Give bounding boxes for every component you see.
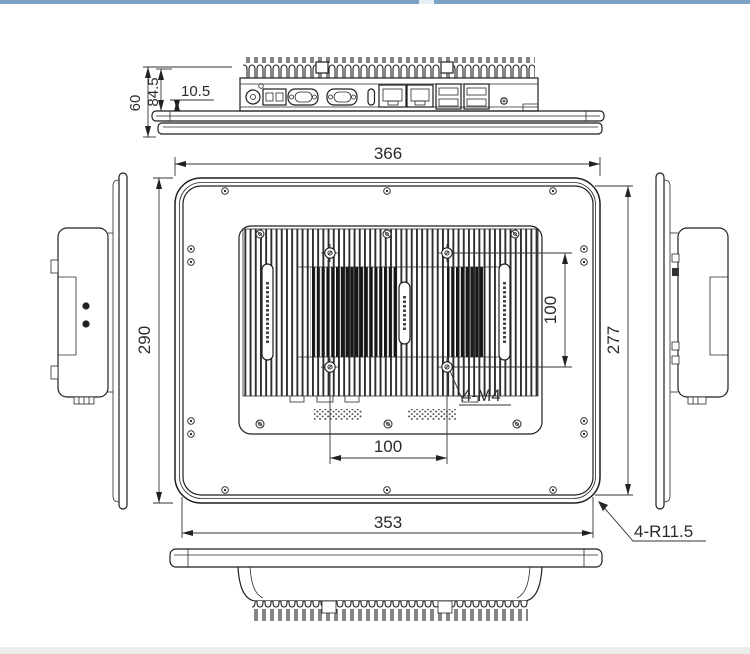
rear-view: 366 290 277 353 100 100 [135, 144, 706, 541]
top-view-dimensions: 60 84.5 10.5 [127, 67, 232, 137]
fin-lug [438, 601, 452, 613]
speaker-grille-right [408, 409, 456, 420]
chassis-body-right-view [678, 228, 728, 397]
reset-button [501, 98, 507, 104]
heatsink-fins-bottom [252, 601, 528, 621]
dim-outer-height: 290 [135, 326, 154, 354]
front-glass-top-view [158, 123, 602, 134]
fin-lug [316, 62, 328, 73]
mount-clip [51, 366, 58, 379]
fin-lug [441, 62, 453, 73]
front-glass-left-view [119, 173, 127, 509]
side-hole [82, 320, 89, 327]
usb-c-port [368, 89, 375, 105]
window-top-edge-bar [0, 0, 750, 4]
heatsink-fins-dense [447, 267, 483, 357]
heatsink-fins-top [243, 57, 535, 78]
foot [74, 397, 94, 404]
heatsink-fins-dense [310, 267, 398, 357]
chassis-body-left-view [58, 228, 108, 397]
usb-stack-2 [464, 84, 489, 109]
ethernet-port-2 [407, 85, 433, 107]
front-glass-right-view [656, 173, 664, 509]
mount-clip [672, 356, 679, 364]
serial-port-com2 [327, 89, 357, 105]
mount-clip [51, 260, 58, 273]
serial-port-com1 [288, 89, 318, 105]
left-side-view [51, 173, 127, 509]
mount-clip [672, 254, 679, 262]
dim-outer-width: 366 [374, 144, 402, 163]
right-side-view [656, 173, 728, 509]
mount-clip [672, 268, 679, 276]
chassis-body-bottom-view [238, 567, 542, 601]
power-jack [246, 90, 260, 104]
dim-depth-total: 60 [127, 95, 144, 112]
ethernet-port-1 [379, 85, 406, 107]
top-bar-notch [419, 0, 434, 4]
top-profile-view: 60 84.5 10.5 [127, 57, 604, 137]
usb-stack-1 [436, 84, 461, 109]
chassis-body-top-view [240, 78, 538, 111]
side-hole [82, 302, 89, 309]
dim-depth-body: 84.5 [145, 77, 162, 106]
technical-drawing-canvas: 60 84.5 10.5 [0, 0, 750, 654]
label-corner-radius: 4-R11.5 [634, 522, 693, 541]
dim-bezel-gap: 10.5 [181, 83, 210, 100]
dim-panel-width: 353 [374, 513, 402, 532]
speaker-grille-left [314, 409, 362, 420]
front-bezel-top-view [152, 111, 604, 134]
dim-vesa-vertical: 100 [541, 296, 560, 324]
dim-panel-height: 277 [604, 326, 623, 354]
bottom-profile-view [170, 549, 602, 621]
window-bottom-edge-bar [0, 647, 750, 654]
terminal-block [263, 89, 286, 105]
mount-clip [672, 342, 679, 350]
foot [688, 397, 706, 404]
fin-lug [322, 601, 336, 613]
io-ports [246, 84, 507, 109]
dim-vesa-horizontal: 100 [374, 437, 402, 456]
label-vesa-thread: 4-M4 [462, 386, 501, 405]
front-bezel-bottom-view [170, 549, 602, 567]
